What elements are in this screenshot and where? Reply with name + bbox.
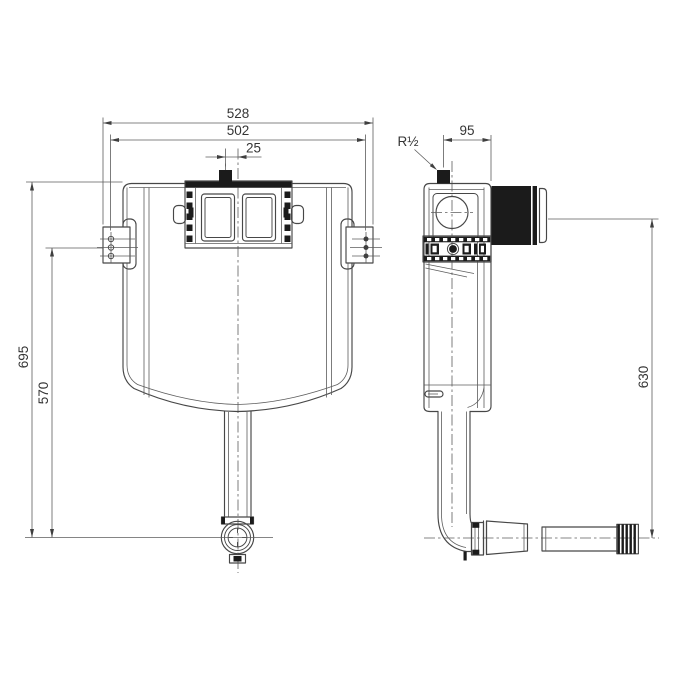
frame-clip-right xyxy=(284,208,289,218)
left-mounting-bracket xyxy=(97,219,138,269)
front-flush-button-right-inner xyxy=(246,198,272,238)
front-flush-button-left xyxy=(202,194,235,241)
grid-wedge-lines xyxy=(426,264,475,277)
right-bracket-hole-3 xyxy=(364,254,369,259)
right-bracket-plate xyxy=(346,227,373,263)
side-inner-corner-curve xyxy=(468,388,485,408)
dimensions-layer: 528 502 25 95 R½ xyxy=(16,106,659,538)
side-pipe-walls xyxy=(438,412,470,515)
side-block-end-ring xyxy=(540,189,547,243)
side-elbow-lug xyxy=(464,552,467,561)
side-block-body xyxy=(492,186,538,245)
dim-label-bracket-height: 570 xyxy=(36,382,51,405)
dim-inlet-offset: 25 xyxy=(206,141,262,167)
side-frame-block xyxy=(492,186,547,245)
dim-label-inlet-thread: R½ xyxy=(397,134,418,149)
dim-label-inlet-setback: 95 xyxy=(459,123,474,138)
loose-pipe-walls xyxy=(542,527,618,551)
right-mounting-bracket xyxy=(341,219,382,269)
right-bracket-hole-1 xyxy=(364,237,369,242)
frame-side-tab-left xyxy=(174,206,186,224)
side-inlet-stub xyxy=(437,170,450,184)
front-body-outline xyxy=(123,184,352,412)
left-bracket-plate xyxy=(103,227,130,263)
front-flush-pipe xyxy=(222,412,254,525)
drawing-canvas: 528 502 25 95 R½ xyxy=(0,0,675,675)
side-pipe-inner-walls xyxy=(442,412,467,515)
side-body-inner-lines xyxy=(424,188,491,409)
front-body-inner-wall xyxy=(127,188,348,405)
side-elbow-inner-arc xyxy=(442,514,467,548)
dim-bracket-height: 570 xyxy=(36,248,103,538)
front-view xyxy=(97,149,382,574)
frame-side-tab-right xyxy=(292,206,304,224)
front-flush-frame xyxy=(174,181,304,248)
front-outlet-elbow-end xyxy=(221,521,253,563)
frame-top-bar xyxy=(185,181,292,188)
dim-outlet-drop: 630 xyxy=(548,219,659,538)
side-valve-housing xyxy=(433,194,478,240)
callout-inlet-thread: R½ xyxy=(397,134,437,170)
side-outlet-elbow xyxy=(438,514,472,552)
dim-label-inlet-offset: 25 xyxy=(246,141,261,156)
side-body-outline xyxy=(424,184,491,412)
loose-pipe-threads xyxy=(618,524,636,554)
side-protection-grid xyxy=(423,236,491,277)
front-flush-button-right xyxy=(243,194,276,241)
side-view xyxy=(423,161,659,561)
side-outlet-pipe-loose xyxy=(542,524,638,554)
front-pipe-collar xyxy=(222,517,254,524)
dim-label-overall-height: 695 xyxy=(16,346,31,369)
frame-clip-left xyxy=(189,208,194,218)
cistern-technical-drawing: 528 502 25 95 R½ xyxy=(0,0,675,675)
right-bracket-hole-2 xyxy=(364,245,369,250)
dim-label-overall-width: 528 xyxy=(227,106,250,121)
side-outlet-connector xyxy=(472,521,528,555)
dim-inlet-setback: 95 xyxy=(444,123,492,181)
front-flush-button-left-inner xyxy=(205,198,231,238)
grid-middle-blocks xyxy=(426,243,487,254)
front-inlet-stub xyxy=(219,170,232,184)
dim-label-fixing-centres: 502 xyxy=(227,123,250,138)
dim-label-outlet-drop: 630 xyxy=(636,366,651,389)
